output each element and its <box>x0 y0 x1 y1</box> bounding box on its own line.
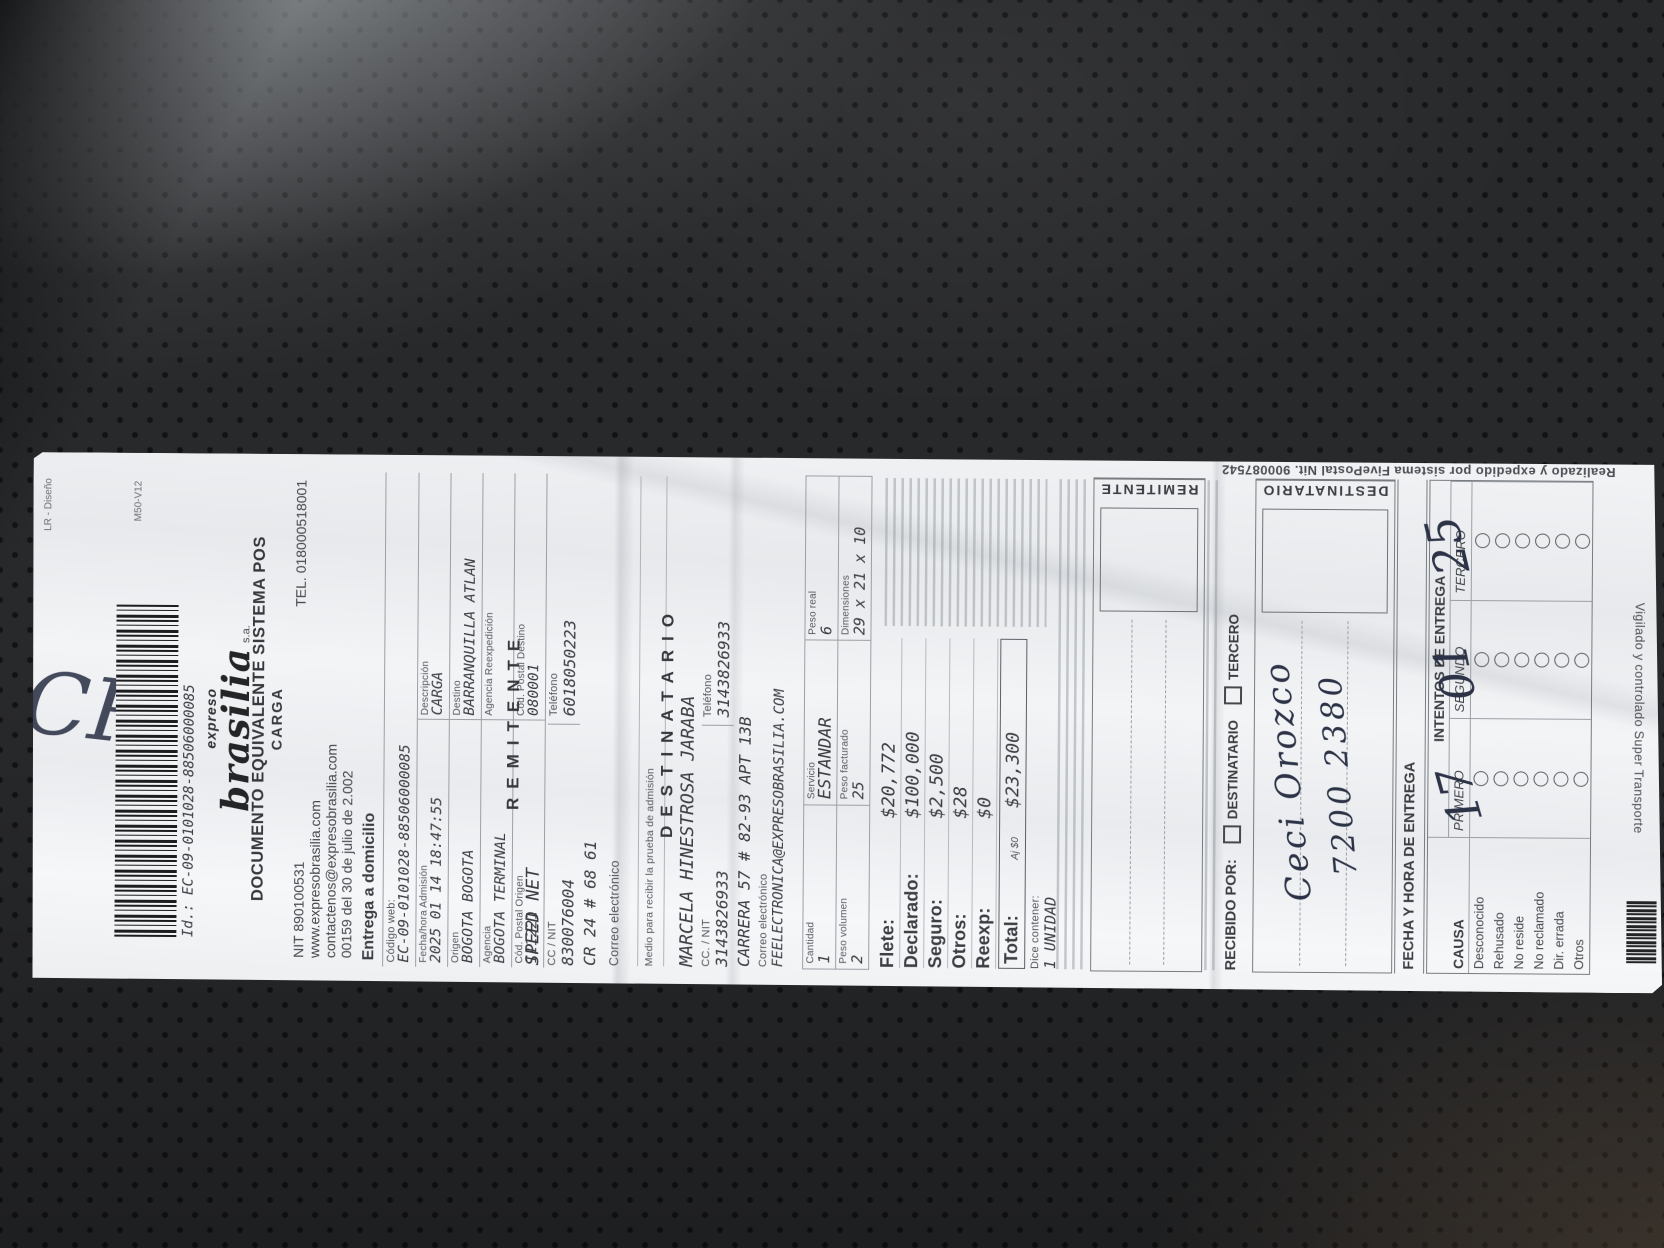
cantidad-label: Cantidad <box>805 810 817 963</box>
shipping-receipt: LR - Diseño M50-V12 CR Id.: EC-09-010102… <box>30 452 1664 993</box>
destinatario-stamp-box <box>1262 509 1389 614</box>
remitente-correo-label: Correo electrónico <box>607 860 622 966</box>
recibido-por-label: RECIBIDO POR: <box>1223 859 1240 970</box>
attempt-circle <box>1575 534 1590 549</box>
company-tel: TEL. 018000518001 <box>293 480 310 607</box>
attempt-circle <box>1475 533 1490 548</box>
destinatario-signature-area: Ceci Orozco 7200 2380 <box>1253 501 1394 973</box>
photo-scene: LR - Diseño M50-V12 CR Id.: EC-09-010102… <box>0 0 1664 1248</box>
total-value: $23,300 <box>1002 732 1024 808</box>
vigilado-edge-note: Vigilado y controlado Super Transporte <box>1631 553 1647 883</box>
company-resolution: 00159 del 30 de julio de 2.002 <box>338 480 357 958</box>
remitente-tel-value: 6018050223 <box>560 620 580 716</box>
destinatario-section: DESTINATARIO MARCELA HINESTROSA JARABA C… <box>656 476 790 967</box>
flete-value: $20,772 <box>878 742 900 818</box>
charge-row-reexp: Reexp: $0 <box>972 639 998 969</box>
destinatario-direccion: CARRERA 57 # 82-93 APT 13B <box>734 477 756 967</box>
causa-header: CAUSA <box>1448 837 1470 973</box>
dimensiones-value: 29 x 21 x 10 <box>851 482 868 635</box>
declarado-label: Declarado: <box>901 818 923 968</box>
destinatario-signature-box: Ceci Orozco 7200 2380 DESTINATARIO <box>1252 479 1395 974</box>
attempt-circle <box>1533 771 1548 786</box>
opcion-tercero-label: TERCERO <box>1226 614 1241 680</box>
otros-label: Otros: <box>949 818 971 968</box>
attempt-circle-cell <box>1472 481 1493 600</box>
recibido-por-row: RECIBIDO POR: DESTINATARIO TERCERO <box>1222 480 1243 970</box>
peso-real-value: 6 <box>818 482 835 635</box>
shipment-barcode <box>114 605 178 937</box>
handwritten-month: 01 <box>1422 638 1487 706</box>
reexp-label: Reexp: <box>973 819 995 969</box>
attempt-circle <box>1555 534 1570 549</box>
causa-row-label: Otros <box>1569 838 1590 974</box>
attempt-circle <box>1513 771 1528 786</box>
admission-row-origen: Origen BOGOTA BOGOTA Destino BARRANQUILL… <box>448 473 483 967</box>
attempt-circle-cell <box>1511 600 1532 719</box>
attempt-circle-cell <box>1491 600 1512 719</box>
remitente-signature-area <box>1091 499 1204 971</box>
charge-row-seguro: Seguro: $2,500 <box>924 638 950 968</box>
otros-value: $28 <box>950 786 971 819</box>
origen-value: BOGOTA BOGOTA <box>461 725 478 964</box>
attempt-circle-cell <box>1510 719 1531 838</box>
remitente-section: REMITENTE SPEED NET CC / NIT 830076004 T… <box>502 475 667 966</box>
remitente-stamp-box <box>1100 507 1199 612</box>
intentos-corner-cell <box>1427 837 1449 973</box>
attempt-circle-cell <box>1551 600 1572 719</box>
attempt-circle <box>1493 771 1508 786</box>
charge-row-declarado: Declarado: $100,000 <box>900 638 926 968</box>
seguro-label: Seguro: <box>925 818 947 968</box>
codigo-web-row: Código web: EC-09-0101028-88506000085 <box>383 472 419 966</box>
descripcion-value: CARGA <box>431 477 448 716</box>
handwritten-receiver-id: 7200 2380 <box>1312 671 1364 877</box>
seguro-value: $2,500 <box>926 753 947 818</box>
remitente-box-label: REMITENTE <box>1094 478 1204 500</box>
peso-facturado-label: Peso facturado <box>839 646 851 799</box>
remitente-signature-box: REMITENTE <box>1090 477 1205 972</box>
causa-row-label: Rehusado <box>1489 837 1510 973</box>
causa-row-label: No reside <box>1509 837 1530 973</box>
attempt-circle <box>1494 652 1509 667</box>
destinatario-ccnit-value: 3143826933 <box>712 870 732 966</box>
signature-dashed-line <box>1129 620 1132 965</box>
peso-volumen-label: Peso volumen <box>838 810 850 963</box>
remitente-direccion: CR 24 # 68 61 <box>580 476 602 966</box>
fecha-entrega-label: FECHA Y HORA DE ENTREGA <box>1401 762 1418 970</box>
peso-real-label: Peso real <box>807 481 819 634</box>
attempt-circle <box>1574 653 1589 668</box>
fecha-admision-value: 2025 01 14 18:47:55 <box>429 724 446 963</box>
attempt-circle-cell <box>1571 600 1592 719</box>
destinatario-box-label: DESTINATARIO <box>1256 480 1394 502</box>
destinatario-nombre: MARCELA HINESTROSA JARABA <box>676 477 700 967</box>
charge-row-total: Total: Aj $0 $23,300 <box>998 639 1027 969</box>
causa-row-label: Dir. errada <box>1549 838 1570 974</box>
attempt-circle <box>1514 652 1529 667</box>
attempt-circle <box>1553 771 1568 786</box>
charge-row-flete: Flete: $20,772 <box>876 638 902 968</box>
attempt-circle <box>1554 653 1569 668</box>
company-contact-block: NIT 890100531 TEL. 018000518001 www.expr… <box>290 480 357 958</box>
charge-row-otros: Otros: $28 <box>948 638 974 968</box>
declarado-value: $100,000 <box>902 731 924 818</box>
attempt-circle-cell <box>1490 719 1511 838</box>
attempt-circle-cell <box>1492 481 1513 600</box>
attempt-circle <box>1573 771 1588 786</box>
checkbox-destinatario <box>1223 825 1241 843</box>
reexpedicion-label: Agencia Reexpedición <box>484 477 497 716</box>
peso-facturado-value: 25 <box>850 646 867 799</box>
attempt-circle-cell <box>1530 719 1551 838</box>
destinatario-correo-value: FEELECTRONICA@EXPRESOBRASILIA.COM <box>770 689 788 967</box>
checkbox-tercero <box>1224 686 1242 704</box>
cantidad-value: 1 <box>816 810 833 963</box>
remitente-ccnit-value: 830076004 <box>558 879 578 966</box>
total-adjust-note: Aj $0 <box>1010 808 1021 860</box>
service-type-label: Entrega a domicilio <box>360 813 379 961</box>
servicio-value: ESTANDAR <box>817 646 834 799</box>
company-nit: NIT 890100531 <box>290 862 307 958</box>
reexp-value: $0 <box>974 797 995 819</box>
remitente-correo-blank <box>623 476 641 966</box>
fine-print-illegible-band <box>1056 479 1089 969</box>
fine-print-illegible-side <box>885 478 1048 627</box>
codigo-web-value: EC-09-0101028-88506000085 <box>397 477 415 963</box>
attempt-circle-cell <box>1572 482 1593 601</box>
attempt-circle-cell <box>1570 719 1591 838</box>
attempt-circle-cell <box>1531 600 1552 719</box>
signature-dashed-line <box>1163 620 1166 965</box>
attempt-circle <box>1495 534 1510 549</box>
package-table: Cantidad 1 Servicio ESTANDAR Peso real 6… <box>802 475 872 969</box>
attempt-circle <box>1515 534 1530 549</box>
attempt-circle <box>1534 653 1549 668</box>
fine-print-illegible-band2 <box>1204 480 1221 970</box>
destino-value: BARRANQUILLA ATLAN <box>463 477 480 716</box>
charges-table: Flete: $20,772 Declarado: $100,000 Segur… <box>876 638 1061 969</box>
form-meta-version: M50-V12 <box>133 481 144 522</box>
document-subtitle: CARGA <box>268 454 288 984</box>
bottom-barcode-stub <box>1626 901 1656 963</box>
causa-row-label: Desconocido <box>1469 837 1490 973</box>
handwritten-receiver-name: Ceci Orozco <box>1257 659 1320 904</box>
attempt-circle-cell <box>1532 481 1553 600</box>
attempt-circle-cell <box>1552 482 1573 601</box>
intentos-table: INTENTOS DE ENTREGA CAUSA PRIMERO SEGUND… <box>1426 480 1593 975</box>
document-title: DOCUMENTO EQUIVALENTE SISTEMA POS <box>248 454 271 984</box>
remitente-nombre: SPEED NET <box>522 475 546 965</box>
attempt-circle <box>1535 534 1550 549</box>
fivepostal-edge-note: Realizado y expedido por sistema FivePos… <box>1180 462 1616 480</box>
peso-volumen-value: 2 <box>849 810 866 963</box>
admission-row-fecha: Fecha/hora Admisión 2025 01 14 18:47:55 … <box>416 473 451 967</box>
total-label: Total: <box>1001 860 1023 964</box>
destinatario-tel-value: 3143826933 <box>714 621 734 717</box>
attempt-circle-cell <box>1512 481 1533 600</box>
causa-row-label: No reclamado <box>1529 837 1550 973</box>
barcode-id-caption: Id.: EC-09-0101028-88506000085 <box>180 684 198 937</box>
flete-label: Flete: <box>877 818 899 968</box>
form-meta-left: LR - Diseño <box>43 478 54 531</box>
opcion-destinatario-label: DESTINATARIO <box>1225 720 1241 819</box>
attempt-circle-cell <box>1550 719 1571 838</box>
